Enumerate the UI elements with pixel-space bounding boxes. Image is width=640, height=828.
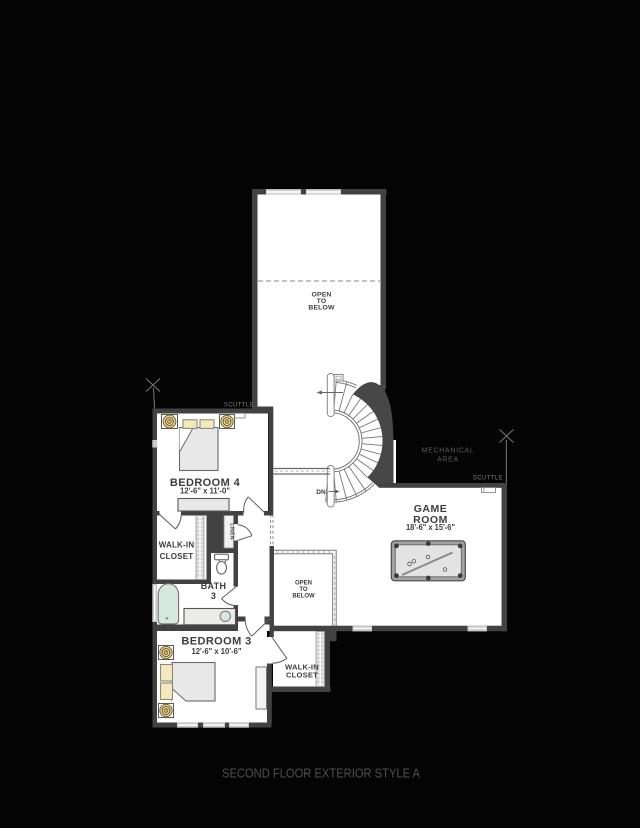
svg-text:SECOND FLOOR EXTERIOR STYLE A: SECOND FLOOR EXTERIOR STYLE A	[222, 766, 420, 781]
svg-text:BATH: BATH	[201, 581, 227, 591]
svg-text:SCUTTLE: SCUTTLE	[224, 403, 254, 409]
svg-text:12'-6" x 11'-0": 12'-6" x 11'-0"	[180, 487, 230, 496]
svg-text:OPEN: OPEN	[295, 581, 312, 587]
svg-text:AREA: AREA	[437, 457, 459, 464]
svg-text:18'-6" x 15'-6": 18'-6" x 15'-6"	[406, 523, 455, 532]
svg-text:CLOSET: CLOSET	[286, 671, 318, 680]
svg-text:DN: DN	[316, 489, 326, 496]
svg-text:WALK-IN: WALK-IN	[159, 541, 195, 550]
svg-text:CLOSET: CLOSET	[160, 552, 194, 561]
svg-text:BELOW: BELOW	[308, 305, 335, 312]
svg-text:TO: TO	[299, 587, 308, 593]
svg-text:BEDROOM 3: BEDROOM 3	[181, 636, 251, 648]
svg-text:12'-6" x 10'-6": 12'-6" x 10'-6"	[192, 647, 242, 656]
svg-text:BELOW: BELOW	[292, 594, 315, 600]
svg-text:SCUTTLE: SCUTTLE	[473, 476, 503, 482]
svg-text:LINEN: LINEN	[228, 523, 234, 540]
svg-text:MECHANICAL: MECHANICAL	[422, 448, 475, 455]
svg-text:3: 3	[211, 591, 216, 601]
